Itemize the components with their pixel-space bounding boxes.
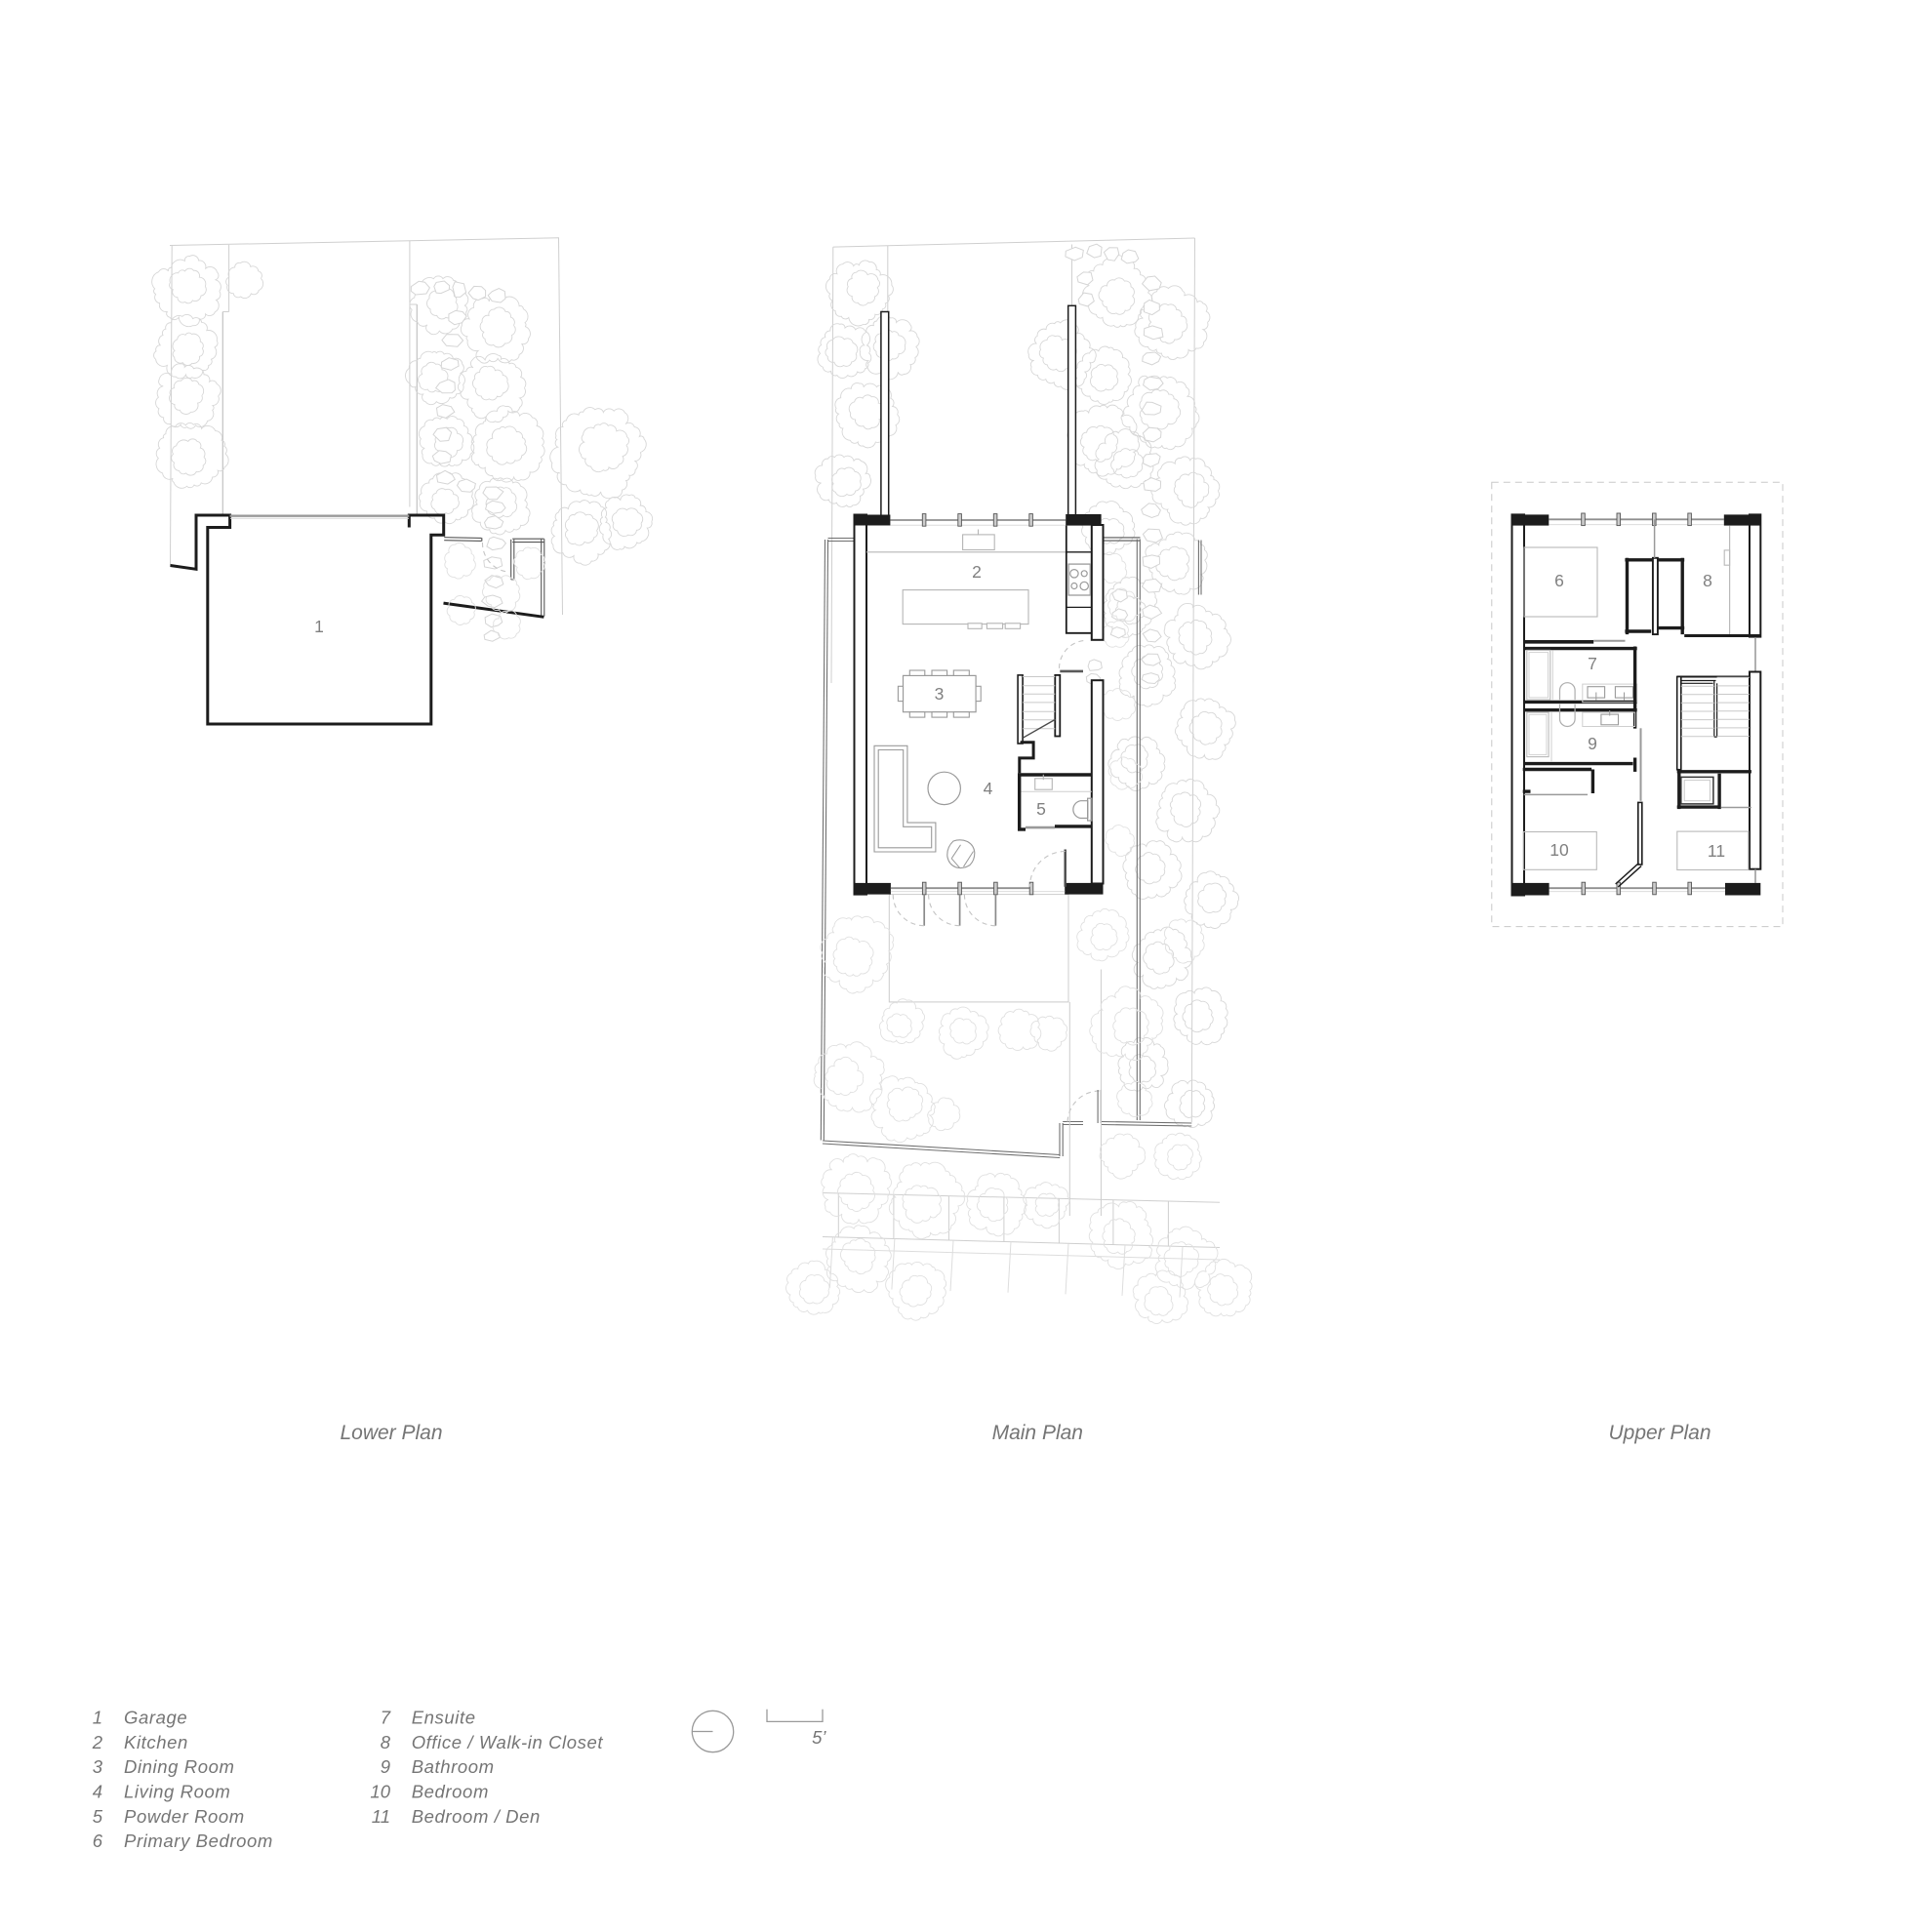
svg-text:Bedroom / Den: Bedroom / Den [412, 1806, 541, 1827]
svg-text:Primary Bedroom: Primary Bedroom [124, 1831, 273, 1851]
svg-text:10: 10 [1550, 840, 1569, 860]
svg-text:Office / Walk-in Closet: Office / Walk-in Closet [412, 1732, 604, 1752]
svg-text:Lower Plan: Lower Plan [340, 1422, 442, 1444]
svg-text:1: 1 [93, 1708, 102, 1728]
svg-text:7: 7 [1588, 654, 1597, 673]
svg-text:2: 2 [92, 1732, 103, 1752]
svg-text:Bathroom: Bathroom [412, 1756, 495, 1777]
svg-text:8: 8 [381, 1732, 391, 1752]
svg-text:9: 9 [381, 1756, 390, 1777]
svg-text:6: 6 [93, 1831, 103, 1851]
svg-text:11: 11 [372, 1806, 390, 1827]
svg-text:Kitchen: Kitchen [124, 1732, 188, 1752]
svg-text:8: 8 [1703, 571, 1712, 590]
svg-text:1: 1 [314, 617, 324, 636]
svg-text:5: 5 [93, 1806, 103, 1827]
svg-text:Garage: Garage [124, 1708, 187, 1728]
svg-text:Bedroom: Bedroom [412, 1782, 489, 1802]
svg-text:Living Room: Living Room [124, 1782, 230, 1802]
svg-text:3: 3 [935, 684, 945, 704]
svg-text:Ensuite: Ensuite [412, 1708, 476, 1728]
svg-text:4: 4 [93, 1782, 102, 1802]
svg-text:11: 11 [1708, 841, 1725, 861]
svg-text:4: 4 [984, 779, 993, 798]
svg-text:9: 9 [1588, 734, 1597, 753]
svg-text:Main Plan: Main Plan [992, 1422, 1083, 1444]
svg-text:2: 2 [972, 562, 982, 582]
svg-text:3: 3 [93, 1756, 103, 1777]
svg-text:6: 6 [1554, 571, 1564, 590]
svg-text:5’: 5’ [812, 1727, 826, 1748]
svg-text:Dining Room: Dining Room [124, 1756, 235, 1777]
svg-text:10: 10 [370, 1782, 390, 1802]
svg-text:7: 7 [381, 1708, 391, 1728]
svg-text:Upper Plan: Upper Plan [1608, 1422, 1711, 1444]
svg-text:Powder Room: Powder Room [124, 1806, 245, 1827]
svg-text:5: 5 [1036, 799, 1046, 819]
